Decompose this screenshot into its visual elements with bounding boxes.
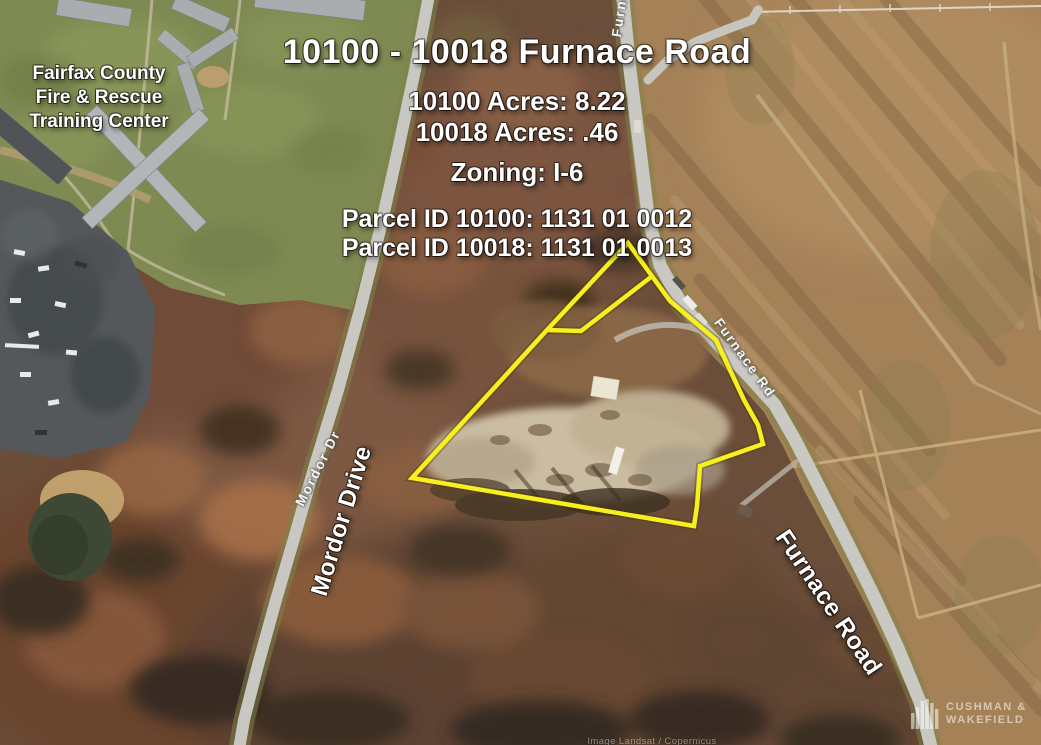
acres-10018: 10018 Acres: .46 [283,117,751,148]
parcel-id-10018: Parcel ID 10018: 1131 01 0013 [283,234,751,263]
zoning-label: Zoning: I-6 [283,157,751,188]
cushman-wakefield-logo: CUSHMAN & WAKEFIELD [911,699,1027,729]
concrete-pad [591,376,620,400]
cushman-wakefield-logo-icon [911,699,939,729]
logo-line1: CUSHMAN & [946,701,1027,714]
landmark-line1: Fairfax County [29,62,168,86]
aerial-map: 10100 - 10018 Furnace Road 10100 Acres: … [0,0,1041,745]
landmark-line3: Training Center [29,110,168,134]
parcel-id-10100: Parcel ID 10100: 1131 01 0012 [283,205,751,234]
cushman-wakefield-logo-text: CUSHMAN & WAKEFIELD [946,701,1027,727]
acres-10100: 10100 Acres: 8.22 [283,86,751,117]
property-header: 10100 - 10018 Furnace Road 10100 Acres: … [283,33,751,263]
logo-line2: WAKEFIELD [946,714,1027,727]
imagery-attribution: Image Landsat / Copernicus [587,736,716,745]
page-title: 10100 - 10018 Furnace Road [283,33,751,72]
landmark-line2: Fire & Rescue [29,86,168,110]
landmark-label: Fairfax County Fire & Rescue Training Ce… [29,62,168,134]
